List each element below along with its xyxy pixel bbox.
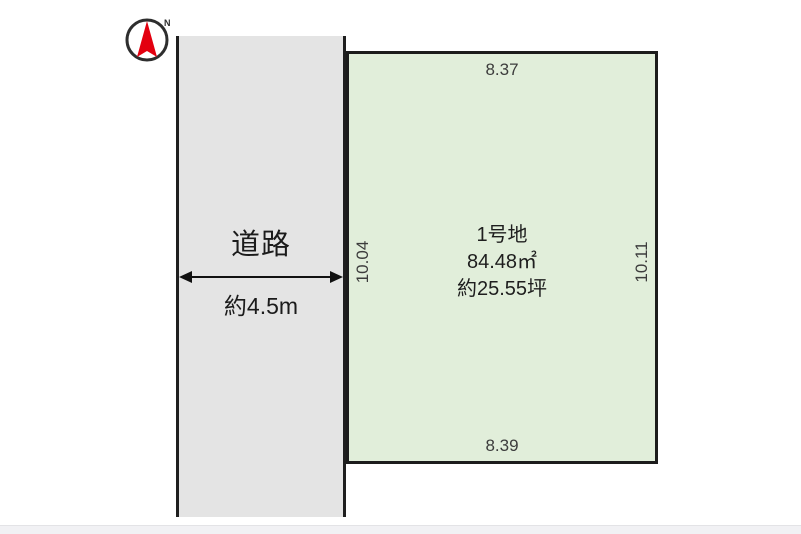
compass-north-icon: N	[124, 15, 174, 63]
road-area: 道路 約4.5m	[176, 36, 346, 517]
plot-1-area: 8.37 10.04 10.11 8.39 1号地 84.48㎡ 約25.55坪	[346, 51, 658, 464]
dimension-top: 8.37	[349, 60, 655, 80]
road-label: 道路	[179, 221, 343, 263]
road-width-arrow	[179, 270, 343, 284]
plot-area-sqm: 84.48㎡	[349, 249, 655, 276]
compass-n-label: N	[164, 18, 171, 28]
plot-info: 1号地 84.48㎡ 約25.55坪	[349, 222, 655, 303]
road-width-label: 約4.5m	[179, 287, 343, 321]
footer-band	[0, 525, 801, 534]
plot-title: 1号地	[349, 222, 655, 249]
dimension-bottom: 8.39	[349, 436, 655, 456]
plot-area-tsubo: 約25.55坪	[349, 276, 655, 303]
site-plan-diagram: N 道路 約4.5m 8.37 10.04 10.11 8.39 1号地 84.…	[0, 0, 801, 534]
